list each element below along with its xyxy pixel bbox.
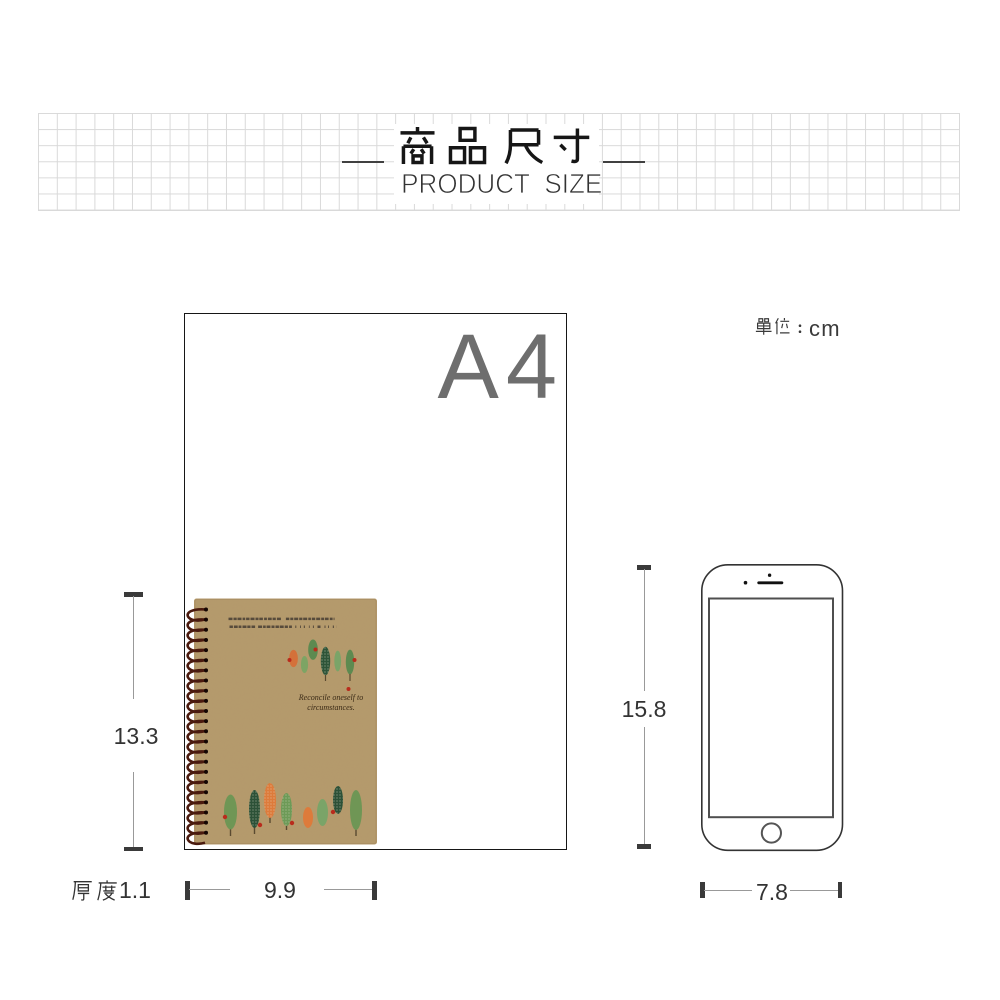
svg-text:circumstances.: circumstances.	[307, 703, 354, 712]
svg-text:Reconcile oneself to: Reconcile oneself to	[298, 693, 363, 702]
